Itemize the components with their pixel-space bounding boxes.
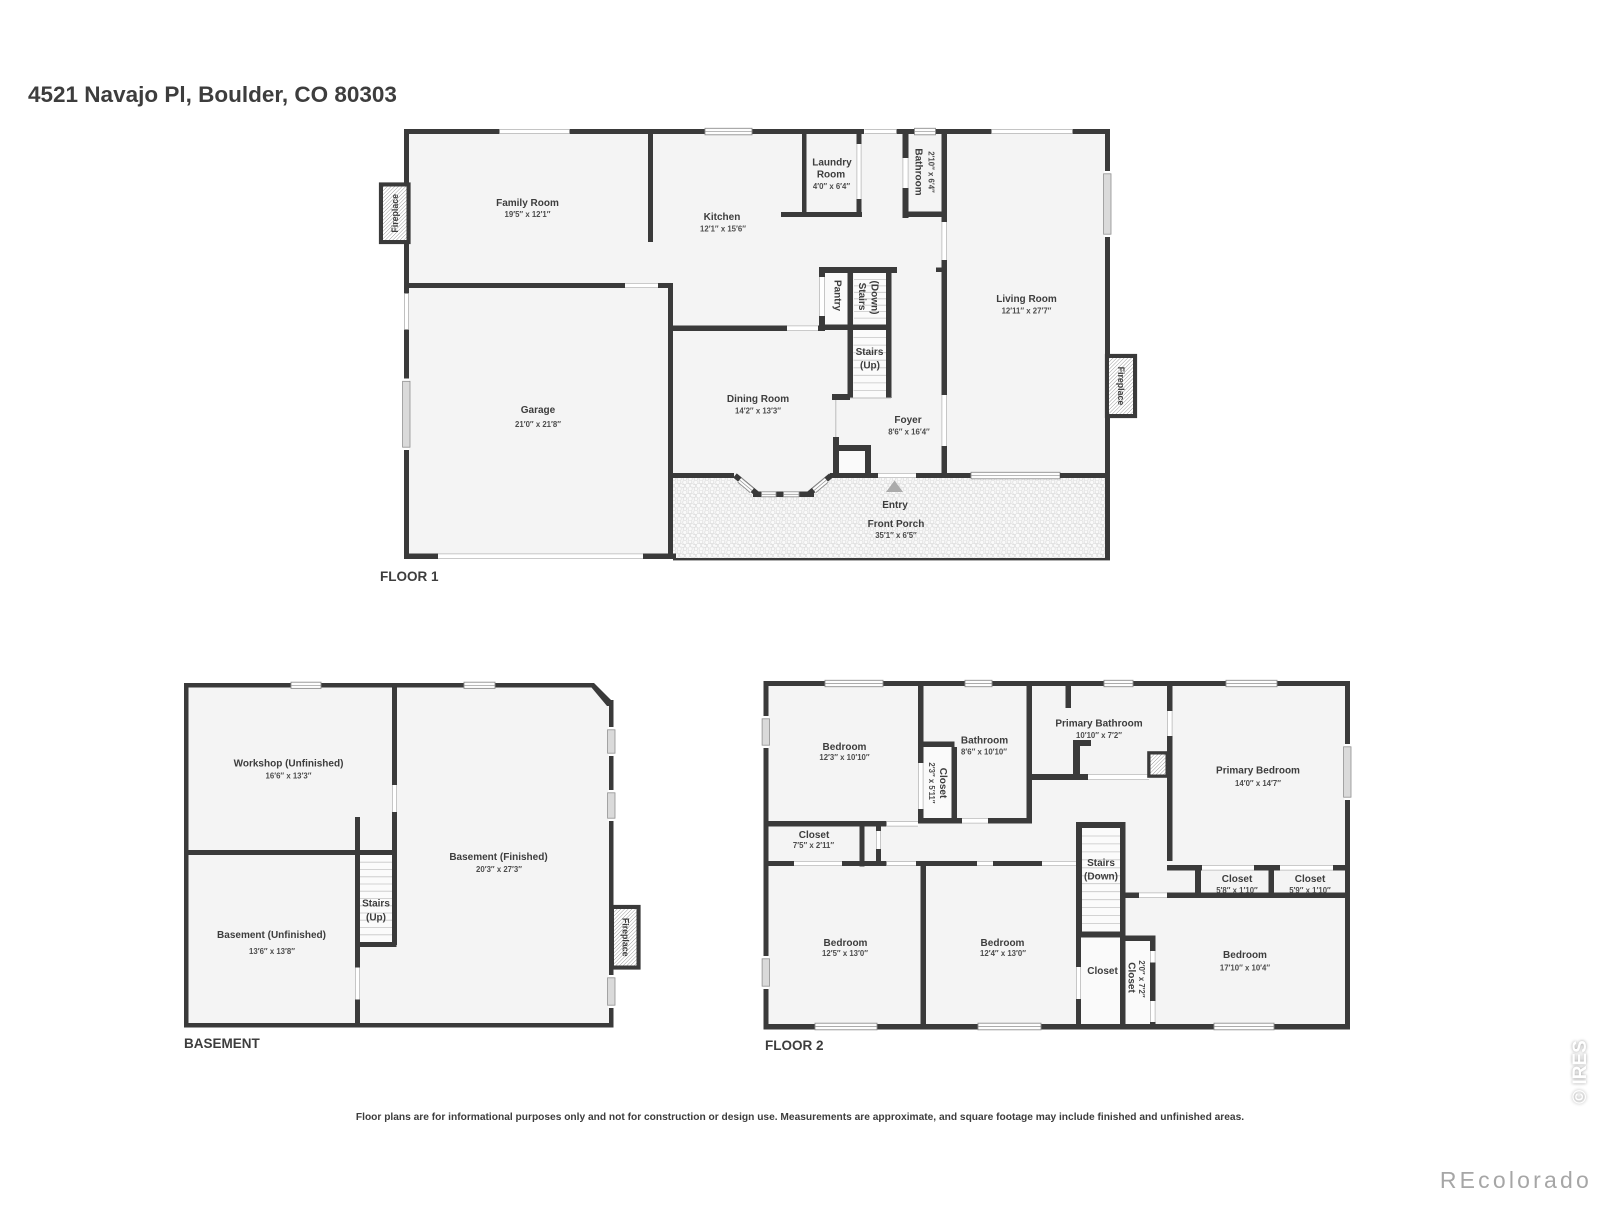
svg-text:Stairs: Stairs xyxy=(856,347,884,358)
svg-text:8′6″ x 10′10″: 8′6″ x 10′10″ xyxy=(961,748,1007,757)
svg-text:Laundry: Laundry xyxy=(812,158,852,169)
svg-text:(Down): (Down) xyxy=(1084,872,1118,883)
svg-text:12′4″ x 13′0″: 12′4″ x 13′0″ xyxy=(980,949,1026,958)
svg-text:8′6″ x 16′4″: 8′6″ x 16′4″ xyxy=(888,428,930,437)
svg-text:Front Porch: Front Porch xyxy=(868,519,925,530)
svg-text:Dining Room: Dining Room xyxy=(727,394,789,405)
svg-text:FLOOR 2: FLOOR 2 xyxy=(765,1038,824,1053)
svg-text:12′5″ x 13′0″: 12′5″ x 13′0″ xyxy=(822,949,868,958)
svg-text:Room: Room xyxy=(817,170,845,181)
svg-text:Closet: Closet xyxy=(1222,874,1253,885)
svg-text:14′0″ x 14′7″: 14′0″ x 14′7″ xyxy=(1235,779,1281,788)
svg-text:FLOOR 1: FLOOR 1 xyxy=(380,569,439,584)
svg-text:20′3″ x 27′3″: 20′3″ x 27′3″ xyxy=(476,865,522,874)
svg-text:Entry: Entry xyxy=(882,500,908,511)
svg-text:Bathroom: Bathroom xyxy=(913,148,924,195)
svg-text:Closet: Closet xyxy=(1126,962,1137,993)
svg-text:Basement (Finished): Basement (Finished) xyxy=(449,852,547,863)
svg-text:Closet: Closet xyxy=(1087,966,1118,977)
svg-text:4521 Navajo Pl, Boulder, CO 80: 4521 Navajo Pl, Boulder, CO 80303 xyxy=(28,82,397,107)
svg-text:Fireplace: Fireplace xyxy=(1116,367,1126,406)
svg-text:Stairs: Stairs xyxy=(362,899,390,910)
svg-text:4′0″ x 6′4″: 4′0″ x 6′4″ xyxy=(813,182,850,191)
svg-text:Bedroom: Bedroom xyxy=(824,938,868,949)
svg-text:(Down): (Down) xyxy=(869,281,880,315)
svg-text:Closet: Closet xyxy=(799,830,830,841)
svg-text:21′0″ x 21′8″: 21′0″ x 21′8″ xyxy=(515,420,561,429)
svg-text:Workshop (Unfinished): Workshop (Unfinished) xyxy=(234,759,344,770)
svg-text:19′5″ x 12′1″: 19′5″ x 12′1″ xyxy=(505,210,551,219)
svg-text:Pantry: Pantry xyxy=(832,280,843,312)
svg-text:Bedroom: Bedroom xyxy=(981,938,1025,949)
svg-text:12′11″ x 27′7″: 12′11″ x 27′7″ xyxy=(1002,307,1052,316)
svg-text:Fireplace: Fireplace xyxy=(390,194,400,233)
svg-text:5′8″ x 1′10″: 5′8″ x 1′10″ xyxy=(1216,886,1258,895)
svg-text:© IRES: © IRES xyxy=(1570,1040,1591,1104)
svg-text:(Up): (Up) xyxy=(860,361,880,372)
svg-text:Foyer: Foyer xyxy=(894,415,921,426)
svg-text:Stairs: Stairs xyxy=(856,283,867,311)
svg-text:2′10″ x 6′4″: 2′10″ x 6′4″ xyxy=(927,151,936,193)
svg-text:Bedroom: Bedroom xyxy=(823,742,867,753)
svg-text:16′6″ x 13′3″: 16′6″ x 13′3″ xyxy=(266,772,312,781)
svg-text:Garage: Garage xyxy=(521,405,556,416)
svg-text:(Up): (Up) xyxy=(366,913,386,924)
svg-text:35′1″ x 6′5″: 35′1″ x 6′5″ xyxy=(875,531,917,540)
svg-text:Fireplace: Fireplace xyxy=(620,918,630,957)
svg-text:Primary Bathroom: Primary Bathroom xyxy=(1055,719,1142,730)
svg-text:Primary Bedroom: Primary Bedroom xyxy=(1216,766,1300,777)
svg-text:10′10″ x 7′2″: 10′10″ x 7′2″ xyxy=(1076,731,1122,740)
svg-text:2′3″ x 5′11″: 2′3″ x 5′11″ xyxy=(927,762,936,803)
svg-text:Floor plans are for informatio: Floor plans are for informational purpos… xyxy=(356,1112,1244,1123)
svg-text:Stairs: Stairs xyxy=(1087,858,1115,869)
svg-text:Family Room: Family Room xyxy=(496,198,559,209)
svg-text:12′1″ x 15′6″: 12′1″ x 15′6″ xyxy=(700,225,746,234)
svg-text:Closet: Closet xyxy=(937,768,948,799)
svg-text:2′0″ x 7′2″: 2′0″ x 7′2″ xyxy=(1137,960,1146,997)
svg-text:Basement (Unfinished): Basement (Unfinished) xyxy=(217,930,326,941)
svg-text:Bedroom: Bedroom xyxy=(1223,950,1267,961)
svg-text:Bathroom: Bathroom xyxy=(961,736,1008,747)
svg-text:Living Room: Living Room xyxy=(996,294,1057,305)
svg-text:Kitchen: Kitchen xyxy=(704,212,741,223)
svg-text:REcolorado: REcolorado xyxy=(1440,1167,1592,1193)
svg-text:14′2″ x 13′3″: 14′2″ x 13′3″ xyxy=(735,407,781,416)
svg-text:BASEMENT: BASEMENT xyxy=(184,1036,261,1051)
svg-text:17′10″ x 10′4″: 17′10″ x 10′4″ xyxy=(1220,964,1270,973)
svg-text:7′5″ x 2′11″: 7′5″ x 2′11″ xyxy=(793,841,834,850)
svg-text:13′6″ x 13′8″: 13′6″ x 13′8″ xyxy=(249,947,295,956)
svg-text:Closet: Closet xyxy=(1295,874,1326,885)
svg-text:5′9″ x 1′10″: 5′9″ x 1′10″ xyxy=(1289,886,1331,895)
svg-text:12′3″ x 10′10″: 12′3″ x 10′10″ xyxy=(819,753,869,762)
